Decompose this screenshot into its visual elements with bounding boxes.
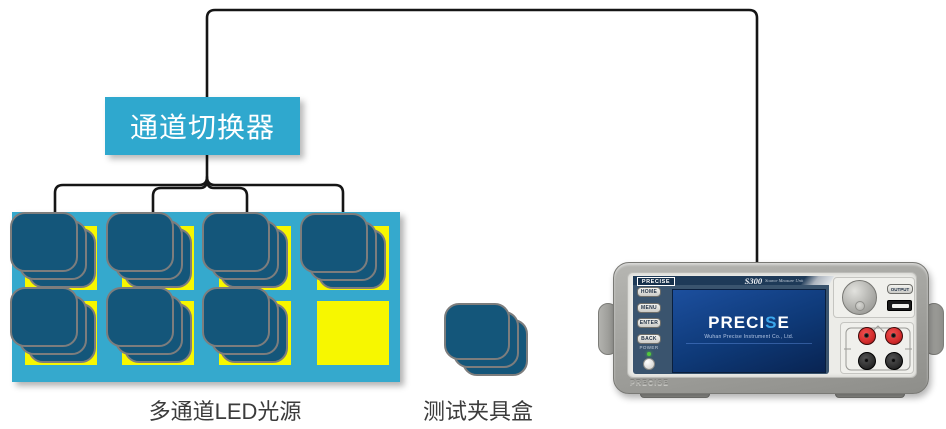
led-module-layer (10, 287, 78, 347)
led-socket (317, 301, 389, 365)
led-module-layer (202, 212, 270, 272)
force-hi-jack (858, 327, 876, 345)
instrument-screen: PRECISE Wuhan Precise Instrument Co., Lt… (672, 289, 826, 373)
diagram-canvas: 通道切换器 多通道LED光源 测试夹具盒 PRECISE S300 Source… (0, 0, 946, 429)
model-label-group: S300 Source Measure Unit (719, 276, 829, 285)
brand-badge: PRECISE (637, 277, 675, 286)
fixture-box-layer (444, 303, 510, 360)
led-module-layer (10, 212, 78, 272)
power-button (643, 358, 655, 370)
channel-switcher-box: 通道切换器 (105, 97, 300, 155)
force-lo-jack (858, 352, 876, 370)
sense-lo-jack (885, 352, 903, 370)
screen-logo: PRECISE (708, 314, 790, 331)
output-button: OUTPUT (887, 284, 913, 294)
channel-switcher-label: 通道切换器 (130, 106, 275, 146)
home-button: HOME (637, 287, 661, 297)
wire-branch-outer-left (55, 155, 207, 216)
led-module-layer (106, 212, 174, 272)
led-module-layer (300, 213, 368, 273)
power-label: POWER (636, 345, 662, 350)
terminal-markings (841, 323, 915, 375)
model-number: S300 (745, 276, 762, 286)
sense-hi-jack (885, 327, 903, 345)
rotary-knob (842, 280, 877, 315)
led-module-layer (106, 287, 174, 347)
model-subtitle: Source Measure Unit (765, 278, 803, 283)
power-led-indicator (647, 352, 651, 356)
led-source-label: 多通道LED光源 (70, 394, 380, 426)
usb-port (887, 300, 912, 311)
chassis-brand-embossed: PRECISE (630, 380, 669, 387)
fixture-label: 测试夹具盒 (398, 394, 558, 426)
usb-tongue (892, 304, 909, 308)
led-module-layer (202, 287, 270, 347)
terminal-panel (840, 322, 914, 374)
menu-button: MENU (637, 303, 661, 313)
back-button: BACK (637, 334, 661, 344)
screen-subtitle: Wuhan Precise Instrument Co., Ltd. (704, 334, 793, 340)
logo-s-glyph: S (765, 313, 777, 332)
screen-bezel: PRECISE S300 Source Measure Unit HOME ME… (633, 276, 829, 374)
screen-divider-line (686, 343, 812, 344)
knob-panel: OUTPUT (833, 277, 915, 318)
knob-dimple (855, 301, 865, 311)
enter-button: ENTER (637, 318, 661, 328)
wire-branch-outer-right (207, 177, 343, 216)
